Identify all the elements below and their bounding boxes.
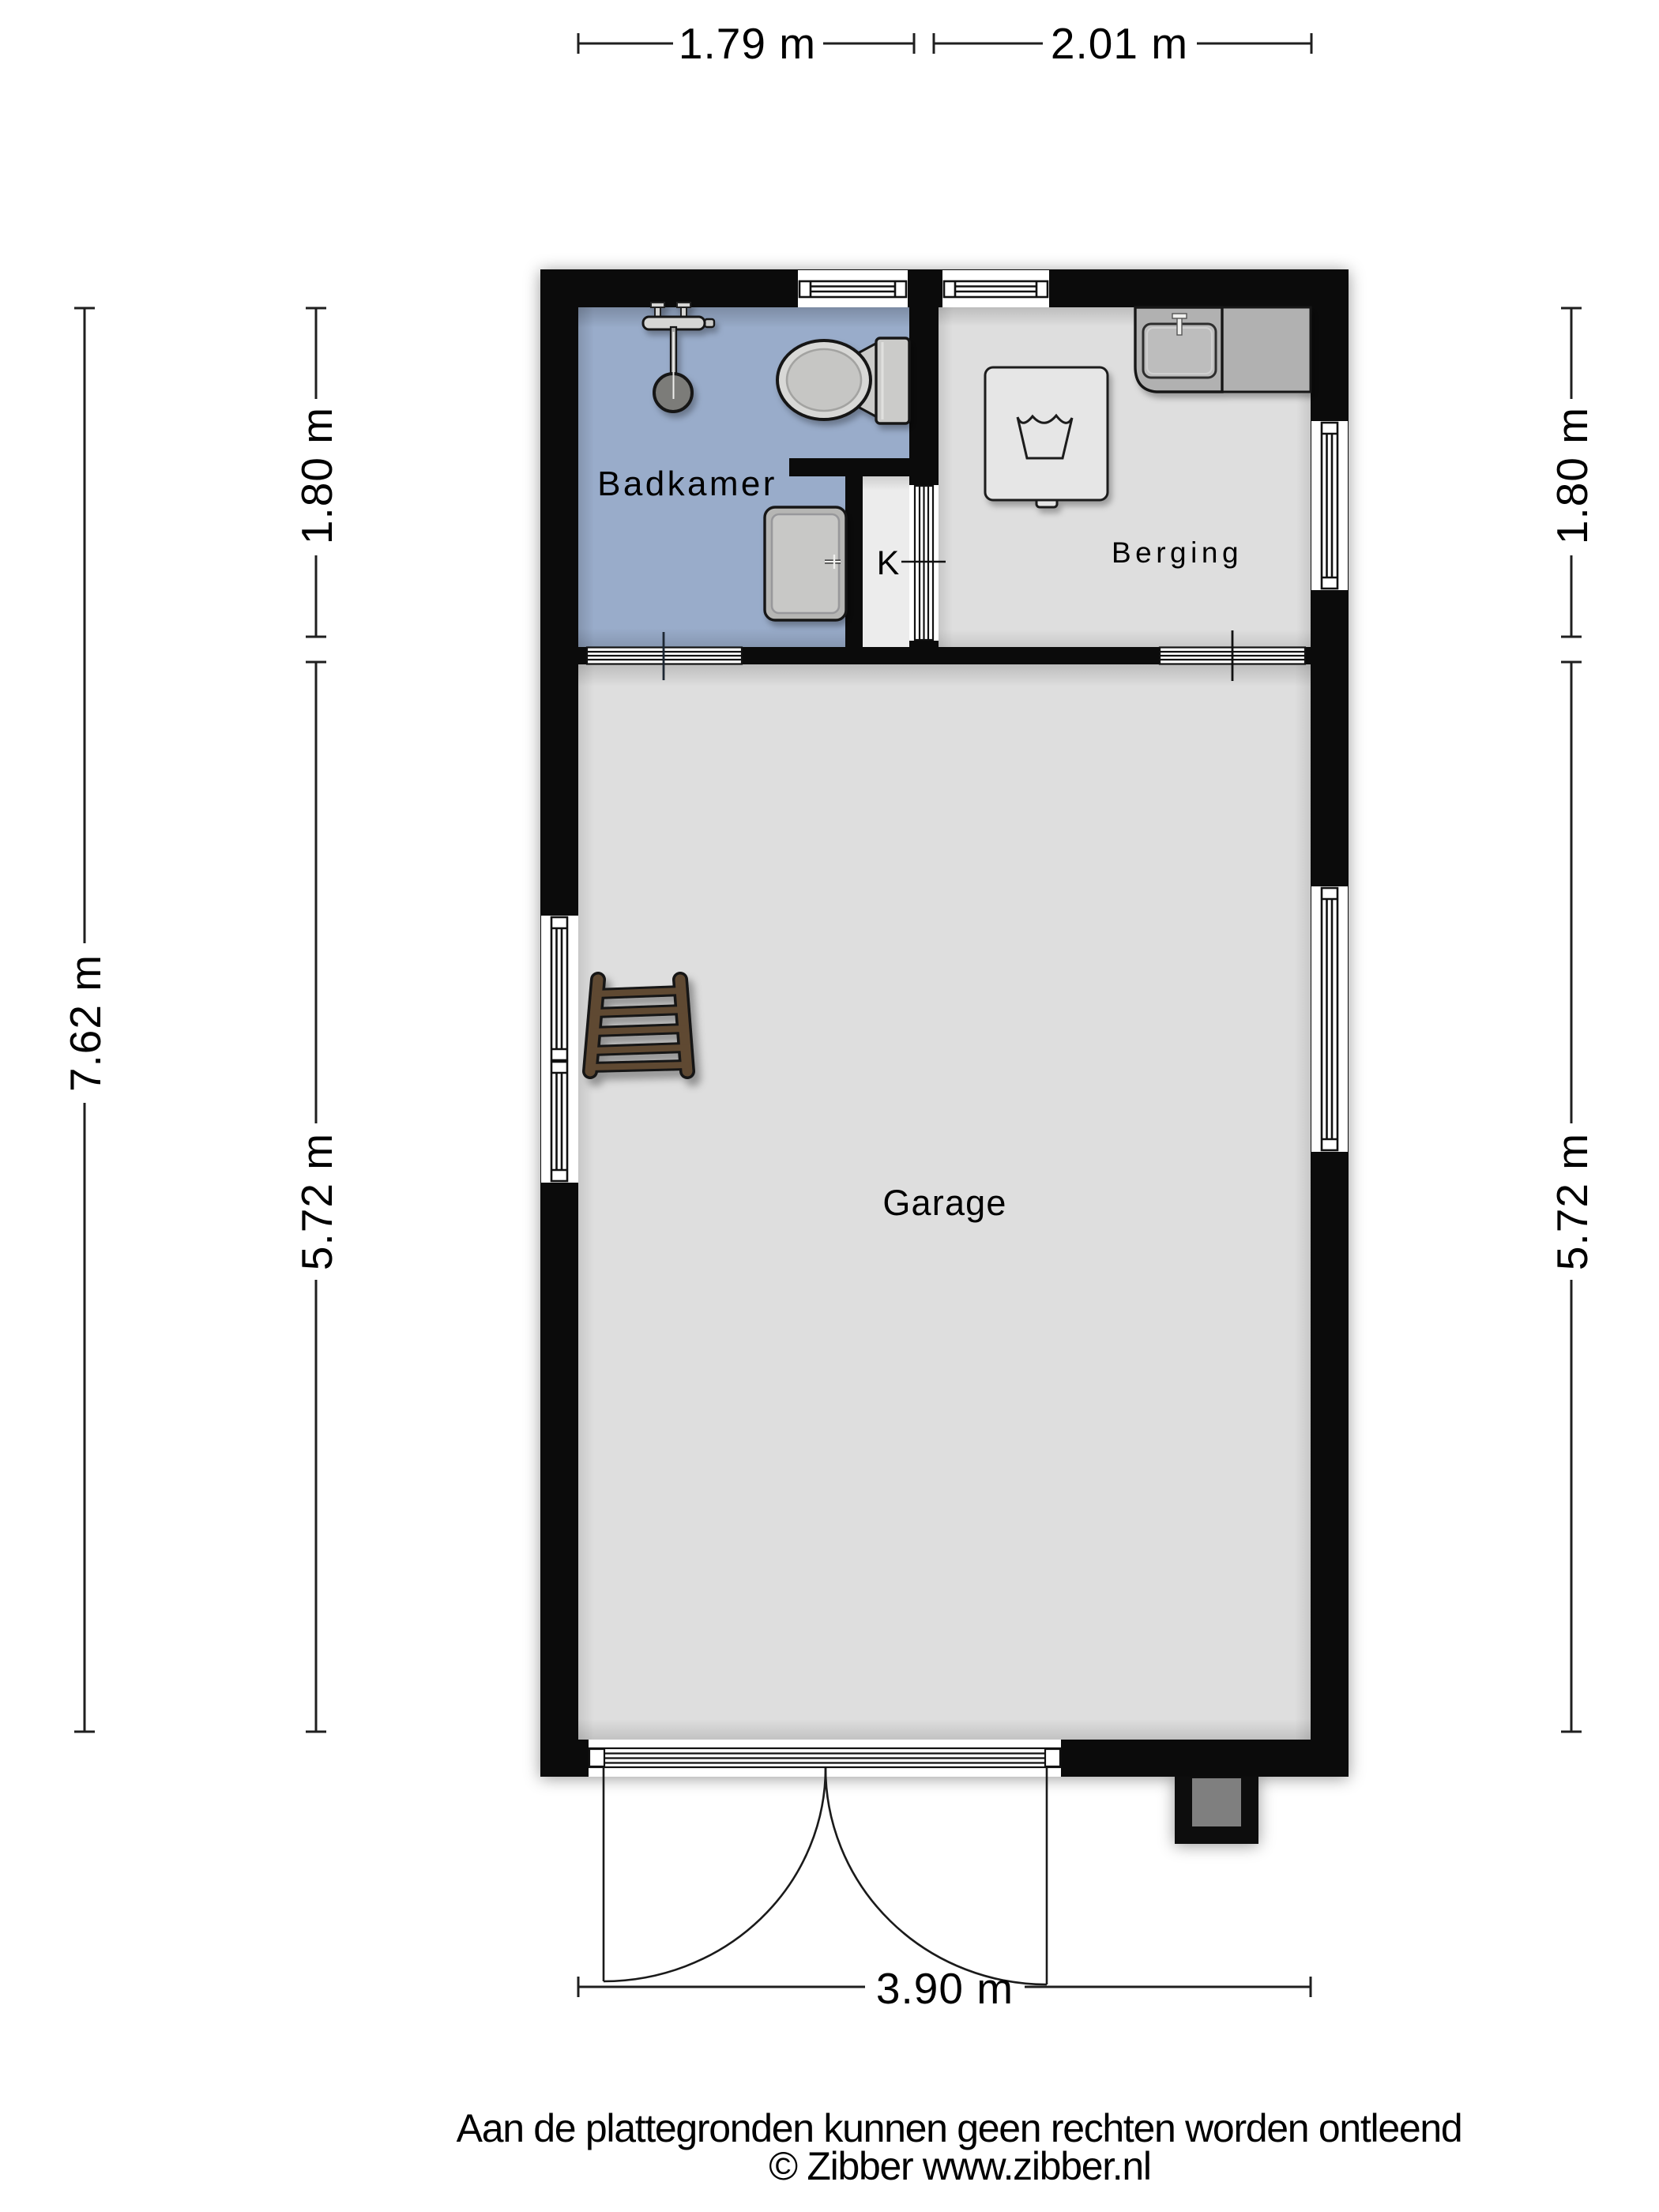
svg-text:© Zibber www.zibber.nl: © Zibber www.zibber.nl [769,2144,1150,2188]
svg-text:Garage: Garage [882,1183,1006,1223]
svg-text:Berging: Berging [1112,536,1243,569]
svg-text:1.80 m: 1.80 m [1548,407,1597,544]
svg-text:3.90 m: 3.90 m [876,1964,1014,2013]
svg-text:2.01 m: 2.01 m [1051,19,1188,68]
svg-text:5.72 m: 5.72 m [292,1133,341,1270]
svg-text:K: K [877,544,900,582]
svg-text:5.72 m: 5.72 m [1548,1133,1597,1270]
svg-text:1.80 m: 1.80 m [292,407,341,544]
svg-text:Badkamer: Badkamer [597,465,777,503]
svg-text:7.62 m: 7.62 m [61,954,110,1092]
svg-text:1.79 m: 1.79 m [679,19,816,68]
